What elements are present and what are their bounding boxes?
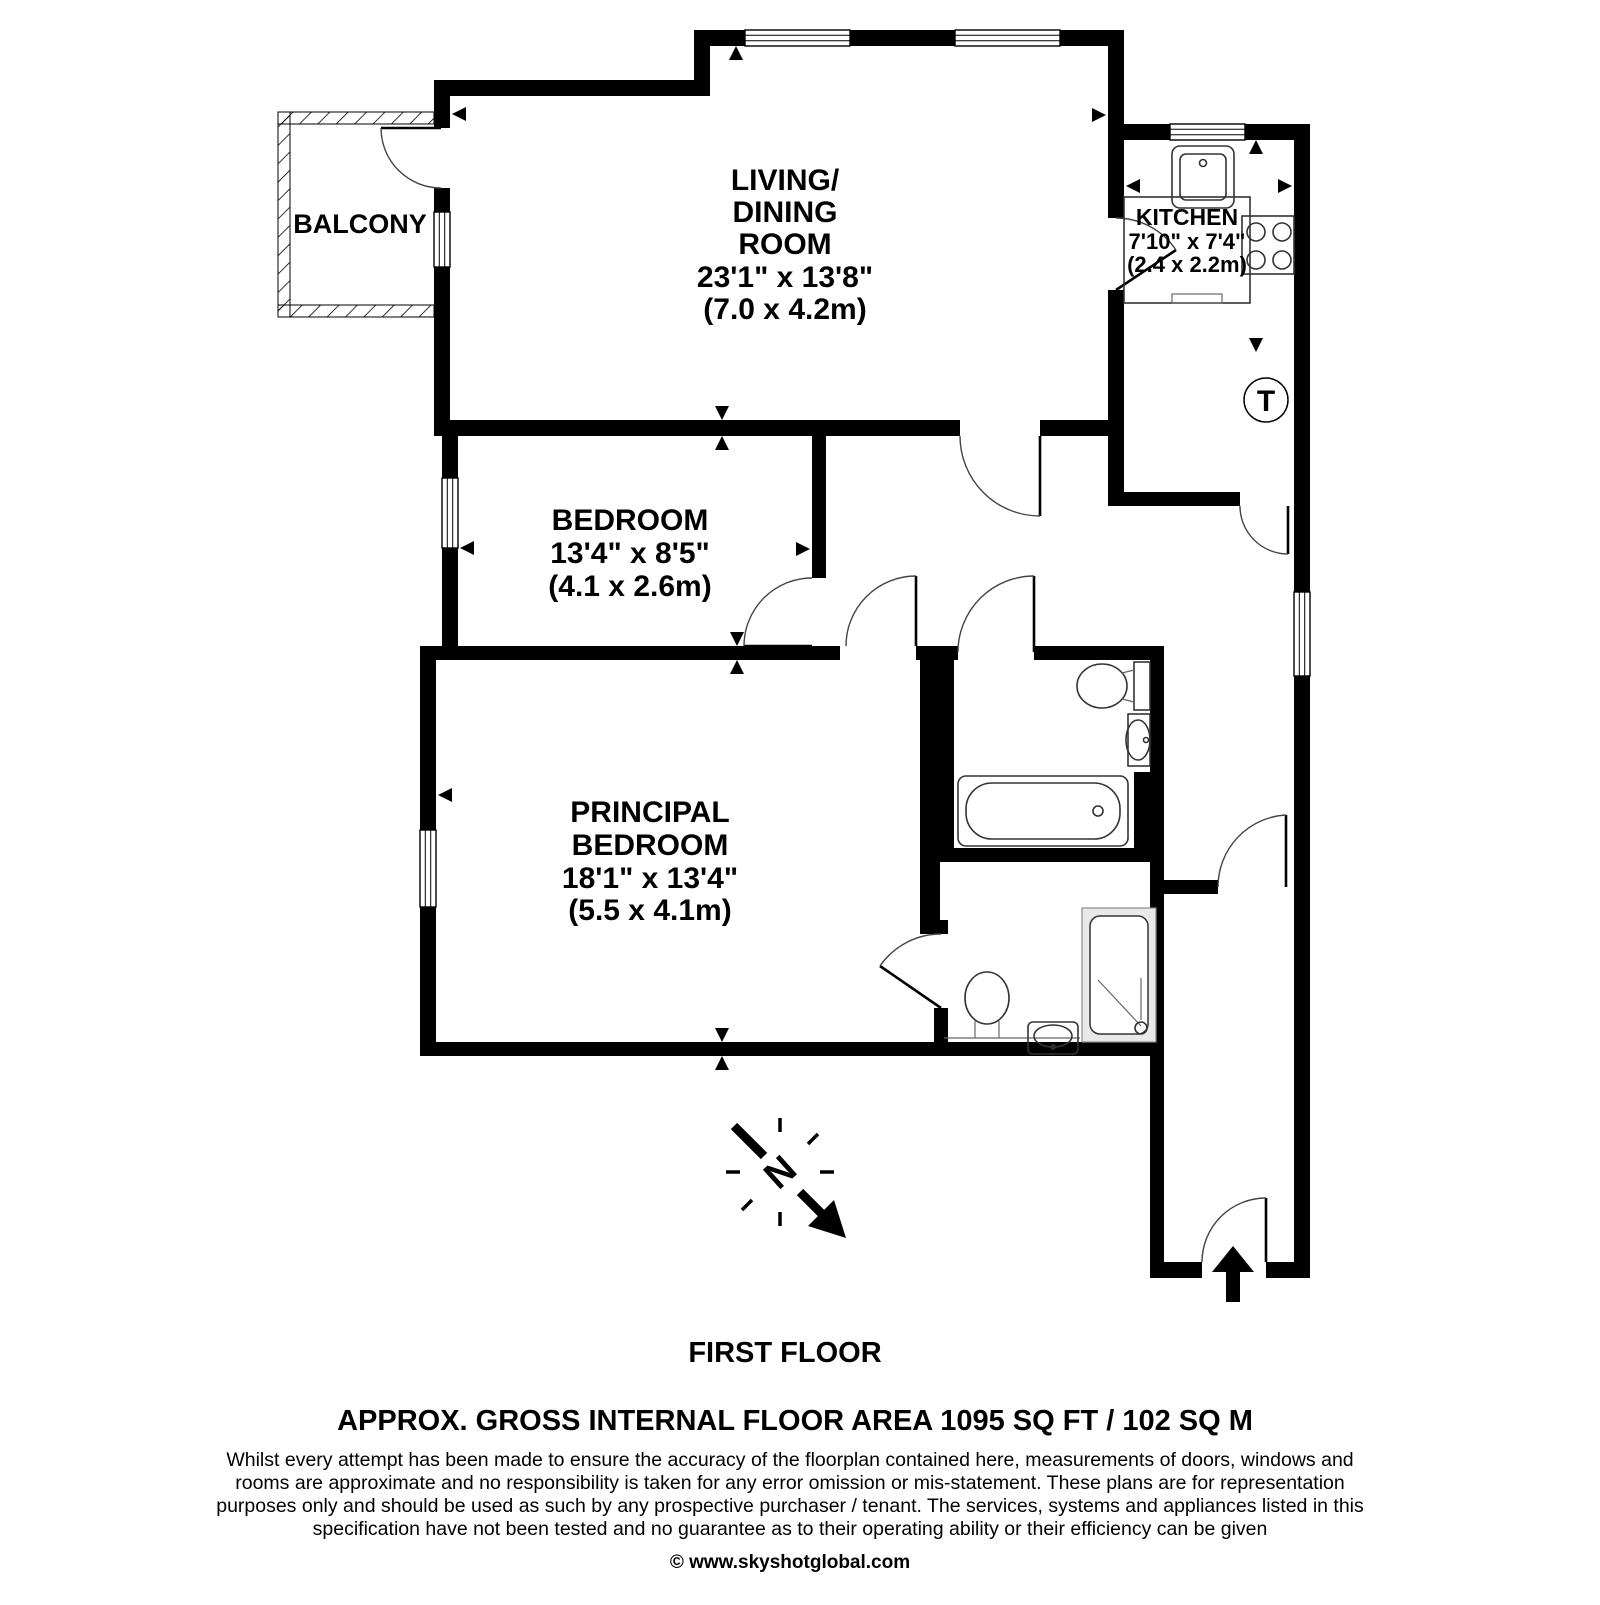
window-bedroom xyxy=(442,478,458,548)
door-bedroom xyxy=(744,578,812,646)
living-label-2: DINING xyxy=(733,196,838,229)
windows xyxy=(420,30,1310,907)
kitchen-label: KITCHEN xyxy=(1136,204,1238,230)
floorplan-page: N T BALCONY LIVING/ DINING ROOM 23'1" x … xyxy=(0,0,1600,1600)
kitchen-sink-icon xyxy=(1172,146,1234,208)
kitchen-dims-imperial: 7'10" x 7'4" xyxy=(1129,229,1246,254)
door-living-hall xyxy=(960,436,1040,516)
toilet-icon xyxy=(1077,662,1150,710)
bathroom-fixtures xyxy=(958,662,1150,846)
window-principal xyxy=(420,830,436,907)
living-label-1: LIVING/ xyxy=(731,164,840,197)
tank-symbol: T xyxy=(1244,378,1288,422)
principal-label-1: PRINCIPAL xyxy=(570,796,729,829)
shower-room-fixtures xyxy=(944,908,1156,1054)
door-cupboard xyxy=(1240,506,1288,554)
window-hall-right xyxy=(1294,592,1310,676)
disclaimer-line-3: purposes only and should be used as such… xyxy=(216,1495,1364,1517)
kitchen-dims-metric: (2.4 x 2.2m) xyxy=(1127,252,1247,277)
window-kitchen xyxy=(1170,124,1245,140)
principal-label-2: BEDROOM xyxy=(572,829,729,862)
floor-title: FIRST FLOOR xyxy=(688,1337,881,1369)
tank-label: T xyxy=(1257,385,1275,418)
toilet-icon-2 xyxy=(944,972,1080,1038)
window-living-balcony xyxy=(434,212,450,267)
principal-dims-imperial: 18'1" x 13'4" xyxy=(562,862,738,895)
door-bathroom xyxy=(958,576,1034,652)
window-living-top-2 xyxy=(955,30,1060,46)
bathtub-icon xyxy=(958,776,1128,846)
door-principal xyxy=(846,576,916,646)
principal-dims-metric: (5.5 x 4.1m) xyxy=(568,894,731,927)
basin-icon xyxy=(1126,714,1150,766)
floorplan-drawing: N T BALCONY LIVING/ DINING ROOM 23'1" x … xyxy=(0,0,1600,1600)
door-ensuite xyxy=(880,934,941,1008)
area-title: APPROX. GROSS INTERNAL FLOOR AREA 1095 S… xyxy=(337,1405,1253,1437)
copyright: © www.skyshotglobal.com xyxy=(670,1552,910,1573)
living-dims-metric: (7.0 x 4.2m) xyxy=(703,293,866,326)
living-dims-imperial: 23'1" x 13'8" xyxy=(697,261,873,294)
living-label-3: ROOM xyxy=(738,228,831,261)
door-corridor xyxy=(1218,815,1286,887)
bedroom-label: BEDROOM xyxy=(552,504,709,537)
north-compass-icon: N xyxy=(726,1118,846,1238)
window-living-top-1 xyxy=(745,30,850,46)
disclaimer-line-4: specification have not been tested and n… xyxy=(313,1518,1268,1540)
bedroom-dims-imperial: 13'4" x 8'5" xyxy=(550,537,710,570)
footer: FIRST FLOOR APPROX. GROSS INTERNAL FLOOR… xyxy=(216,1337,1364,1573)
disclaimer-line-2: rooms are approximate and no responsibil… xyxy=(235,1472,1345,1494)
entrance-arrow-icon xyxy=(1212,1246,1254,1302)
door-balcony xyxy=(381,128,441,188)
disclaimer-line-1: Whilst every attempt has been made to en… xyxy=(226,1449,1353,1471)
bedroom-dims-metric: (4.1 x 2.6m) xyxy=(548,570,711,603)
balcony-label: BALCONY xyxy=(293,209,427,239)
shower-icon xyxy=(1082,908,1156,1042)
